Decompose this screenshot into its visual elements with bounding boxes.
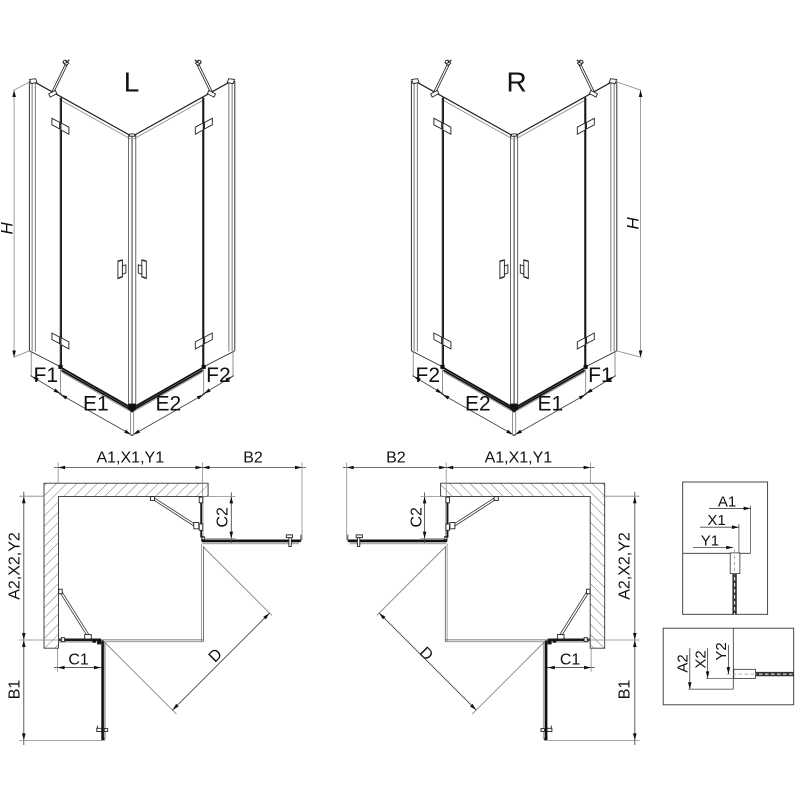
svg-text:B2: B2: [386, 450, 406, 467]
svg-text:X2: X2: [693, 650, 710, 668]
svg-text:B2: B2: [243, 450, 263, 467]
svg-text:A1: A1: [718, 493, 736, 510]
svg-text:H: H: [0, 221, 17, 234]
svg-text:F2: F2: [206, 364, 231, 387]
svg-text:E2: E2: [465, 393, 491, 416]
svg-text:A1,X1,Y1: A1,X1,Y1: [96, 450, 164, 467]
svg-text:F1: F1: [588, 364, 613, 387]
svg-text:C1: C1: [68, 652, 89, 669]
svg-text:H: H: [624, 216, 643, 229]
svg-text:R: R: [506, 67, 526, 98]
svg-text:E2: E2: [155, 393, 181, 416]
svg-text:A1,X1,Y1: A1,X1,Y1: [485, 450, 553, 467]
svg-text:X1: X1: [707, 512, 725, 529]
svg-text:L: L: [124, 67, 140, 98]
svg-text:A2: A2: [675, 654, 692, 672]
svg-text:Y2: Y2: [713, 642, 730, 660]
svg-text:B1: B1: [617, 680, 634, 700]
svg-text:Y1: Y1: [701, 532, 719, 549]
svg-text:A2,X2,Y2: A2,X2,Y2: [617, 532, 634, 600]
svg-text:B1: B1: [7, 680, 24, 700]
svg-text:F2: F2: [416, 364, 441, 387]
svg-text:E1: E1: [537, 393, 563, 416]
svg-text:A2,X2,Y2: A2,X2,Y2: [7, 532, 24, 600]
svg-text:C1: C1: [560, 652, 581, 669]
svg-text:C2: C2: [408, 507, 425, 528]
svg-text:F1: F1: [34, 364, 59, 387]
svg-text:C2: C2: [215, 507, 232, 528]
svg-text:E1: E1: [83, 393, 109, 416]
